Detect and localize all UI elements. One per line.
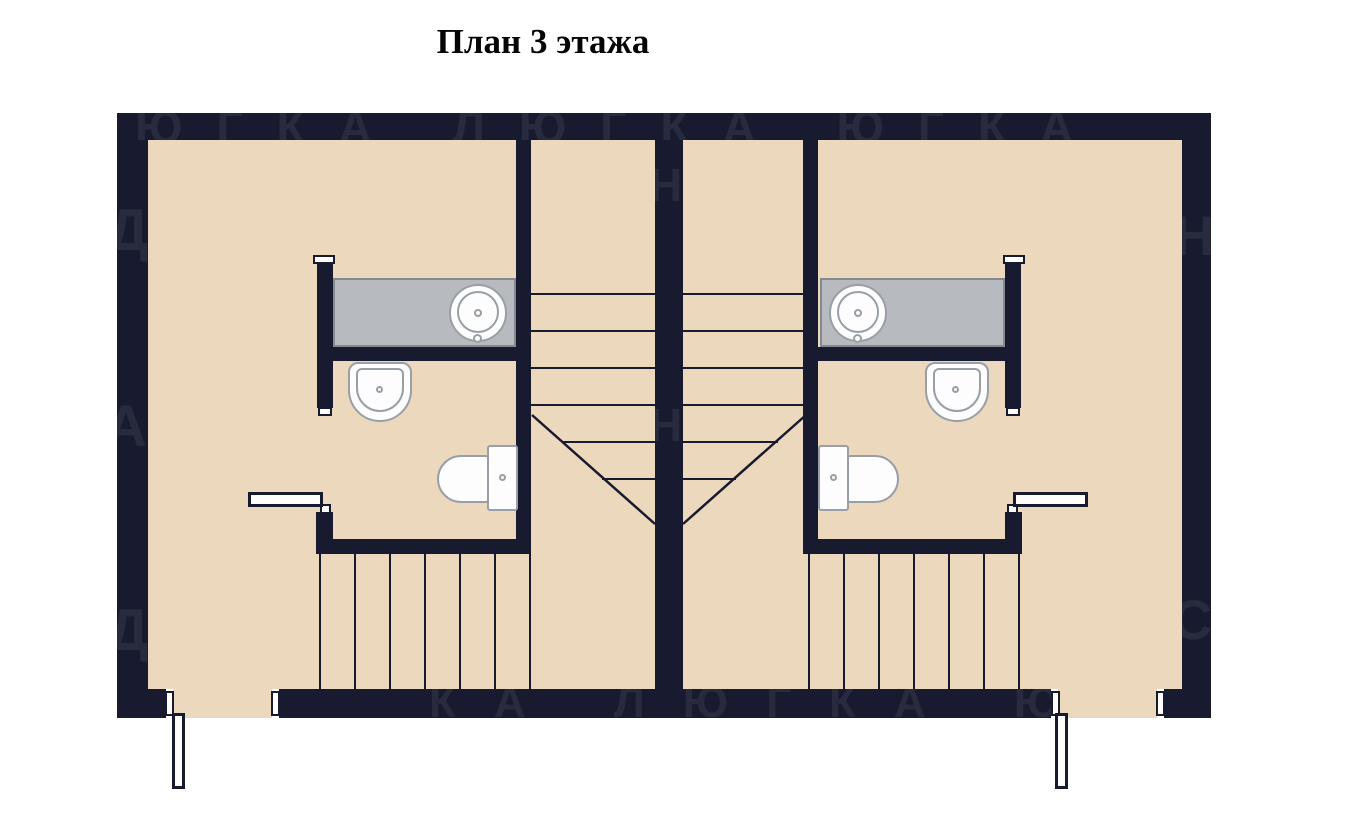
stair-break-line-left (532, 415, 655, 524)
stair-break-lines (0, 0, 1350, 819)
stair-tread (389, 554, 391, 689)
door-jamb (1003, 255, 1025, 264)
sink-faucet-dot-right (854, 309, 862, 317)
toilet-button-right (830, 474, 837, 481)
toilet-button-left (499, 474, 506, 481)
sink-faucet-dot-left (474, 309, 482, 317)
stair-tread (843, 554, 845, 689)
toilet-bowl-left (437, 455, 491, 503)
bathroom-door-leaf-right (1013, 492, 1088, 507)
stair-tread (948, 554, 950, 689)
door-jamb (318, 407, 332, 416)
bathroom-door-leaf-left (248, 492, 323, 507)
stair-break-line-right (683, 415, 806, 524)
door-jamb (271, 691, 280, 716)
stair-tread (494, 554, 496, 689)
stair-tread (459, 554, 461, 689)
toilet-bowl-right (845, 455, 899, 503)
wall-sink-dot-right (952, 386, 959, 393)
door-jamb (1006, 407, 1020, 416)
stair-tread (1018, 554, 1020, 689)
stair-tread (983, 554, 985, 689)
door-jamb (1156, 691, 1165, 716)
sink-drain-dot-right (853, 334, 862, 343)
floor-plan-canvas: План 3 этажа ЮГКА ЛЮГКА ЮГКА Д А Д Н С К… (0, 0, 1350, 819)
wall-sink-dot-left (376, 386, 383, 393)
stair-tread (808, 554, 810, 689)
stair-tread (424, 554, 426, 689)
door-jamb (313, 255, 335, 264)
sink-drain-dot-left (473, 334, 482, 343)
entry-door-leaf-right (1055, 713, 1068, 789)
stair-tread (913, 554, 915, 689)
stair-tread (529, 554, 531, 689)
stair-tread (354, 554, 356, 689)
stair-tread (319, 554, 321, 689)
stair-tread (878, 554, 880, 689)
entry-door-leaf-left (172, 713, 185, 789)
floor-plan: ЮГКА ЛЮГКА ЮГКА Д А Д Н С КА ЛЮГКА ЮГ НО… (0, 0, 1350, 819)
